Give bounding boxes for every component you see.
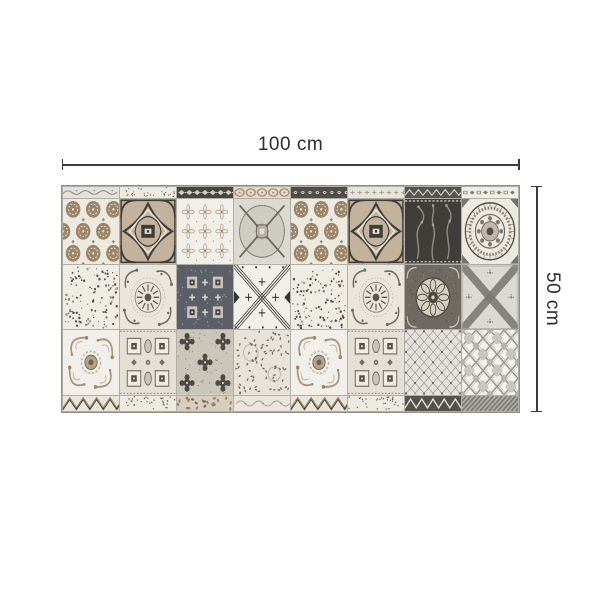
- mat-tile-sun-flower: [348, 265, 404, 330]
- mat-tile-coffered: [348, 330, 404, 395]
- mat-tile-leaf-speckle: [234, 330, 290, 395]
- mat-tile-rosette-dots: [291, 199, 347, 264]
- mat-tile-mini-diamond: [405, 330, 461, 395]
- mat-tile-st-darkfloret: [291, 187, 347, 198]
- mat-tile-st-speckle: [348, 396, 404, 411]
- mat-tile-zigzag-dark: [405, 396, 461, 411]
- mat-tile-st-scroll: [63, 187, 119, 198]
- mat-tile-st-darkdiamond: [177, 187, 233, 198]
- mat-tile-st-circles: [234, 187, 290, 198]
- mat-tile-tapestry: [405, 265, 461, 330]
- mat-tile-st-motifs: [462, 187, 518, 198]
- mat-tile-x-arrows: [234, 265, 290, 330]
- mat-tile-diag-stripes: [462, 396, 518, 411]
- mat-tile-ornate-light: [234, 396, 290, 411]
- mat-tile-rosette-dots: [63, 199, 119, 264]
- mat-tile-chevron: [291, 396, 347, 411]
- width-dimension-label: 100 cm: [62, 134, 519, 156]
- mat-tile-compass: [234, 199, 290, 264]
- mat-tile-st-ornate: [348, 187, 404, 198]
- mat-tile-sun-flower: [120, 265, 176, 330]
- mat-tile-slate-geo: [177, 265, 233, 330]
- mat-tile-diamond-frame: [120, 199, 176, 264]
- width-dimension-line: [62, 164, 519, 166]
- height-dimension-line: [536, 186, 538, 412]
- mat-tile-dense-floral: [177, 330, 233, 395]
- width-dimension-tick-right: [518, 159, 520, 170]
- product-dimension-figure: 100 cm 50 cm: [0, 0, 600, 600]
- mat-tile-band-brown: [177, 396, 233, 411]
- mat-tile-dark-damask: [405, 199, 461, 264]
- tile-mat: [61, 185, 520, 413]
- height-dimension-label: 50 cm: [541, 186, 563, 412]
- mat-tile-baroque-swirl: [63, 330, 119, 395]
- mat-tile-floral-lattice: [177, 199, 233, 264]
- mat-tile-chevron: [63, 396, 119, 411]
- mat-tile-st-zigzag: [405, 187, 461, 198]
- mat-tile-mandala: [462, 199, 518, 264]
- mat-tile-speckle: [291, 265, 347, 330]
- mat-tile-baroque-swirl: [291, 330, 347, 395]
- mat-tile-st-speckle: [120, 396, 176, 411]
- mat-tile-st-speckle: [120, 187, 176, 198]
- mat-tile-x-speckle: [462, 265, 518, 330]
- mat-tile-diamond-frame: [348, 199, 404, 264]
- mat-tile-coffered: [120, 330, 176, 395]
- mat-tile-speckle: [63, 265, 119, 330]
- mat-tile-trellis: [462, 330, 518, 395]
- width-dimension-tick-left: [62, 159, 64, 170]
